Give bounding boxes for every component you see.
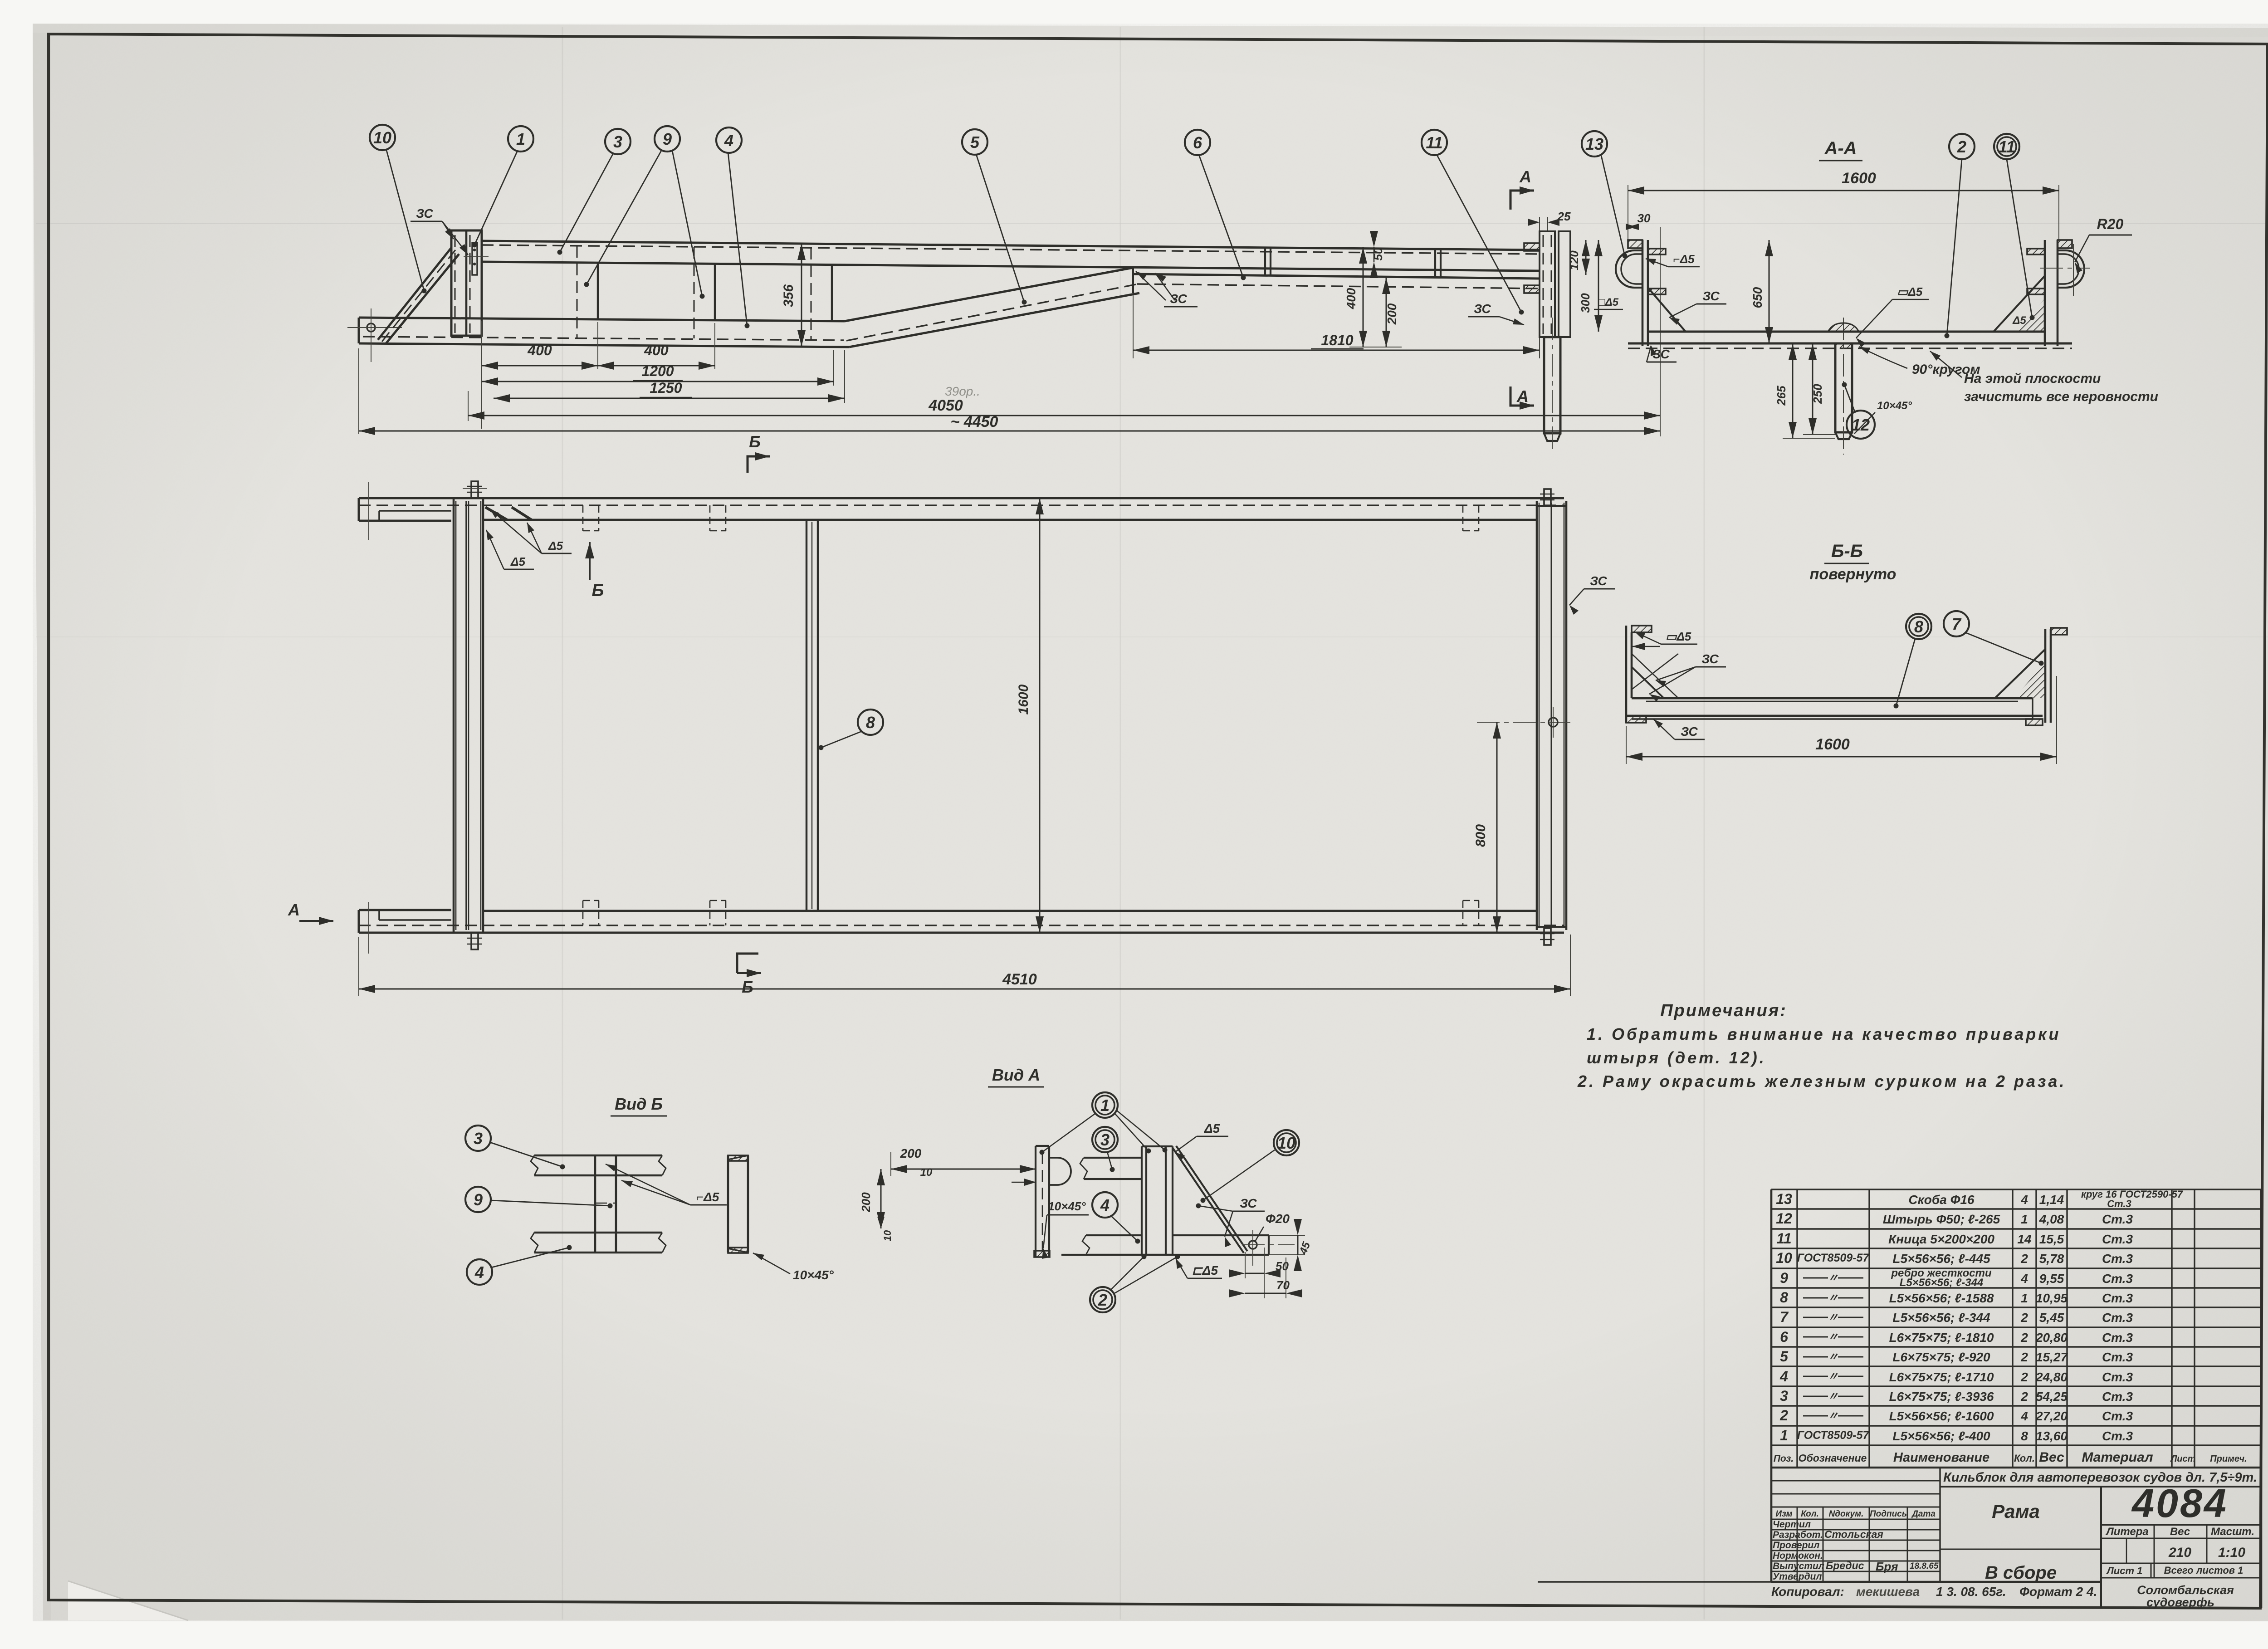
svg-text:Всего листов 1: Всего листов 1 <box>2164 1565 2244 1576</box>
svg-text:13,60: 13,60 <box>2036 1429 2068 1443</box>
svg-text:ГОСТ8509-57: ГОСТ8509-57 <box>1797 1252 1870 1264</box>
svg-text:На этой плоскости: На этой плоскости <box>1964 371 2101 386</box>
svg-text:3: 3 <box>1100 1130 1110 1149</box>
svg-text:4: 4 <box>1779 1368 1788 1385</box>
svg-text:Подпись: Подпись <box>1870 1509 1907 1519</box>
svg-text:4: 4 <box>2020 1193 2028 1207</box>
svg-text:300: 300 <box>1579 293 1592 313</box>
svg-text:70: 70 <box>1276 1278 1290 1292</box>
svg-text:6: 6 <box>1780 1329 1788 1345</box>
svg-text:2: 2 <box>1779 1407 1788 1424</box>
svg-text:Ст.3: Ст.3 <box>2102 1212 2133 1226</box>
svg-text:Лист 1: Лист 1 <box>2106 1565 2143 1576</box>
svg-text:L6×75×75; ℓ-3936: L6×75×75; ℓ-3936 <box>1889 1390 1994 1404</box>
svg-text:50: 50 <box>1276 1259 1289 1273</box>
svg-text:Ст.3: Ст.3 <box>2102 1350 2133 1364</box>
svg-text:200: 200 <box>1385 303 1399 325</box>
svg-text:4084: 4084 <box>2131 1481 2228 1526</box>
svg-text:27,20: 27,20 <box>2035 1409 2068 1423</box>
svg-text:400: 400 <box>644 342 669 358</box>
svg-text:Б-Б: Б-Б <box>1831 541 1863 561</box>
svg-text:Нормокон.: Нормокон. <box>1773 1551 1823 1561</box>
svg-text:Кол.: Кол. <box>2014 1453 2035 1464</box>
svg-text:Примечания:: Примечания: <box>1660 1001 1787 1020</box>
svg-text:1. Обратить внимание на кач: 1. Обратить внимание на качество приварк… <box>1587 1025 2061 1043</box>
svg-text:1: 1 <box>2021 1212 2028 1226</box>
svg-text:400: 400 <box>527 342 552 358</box>
svg-text:4: 4 <box>2020 1409 2028 1423</box>
svg-text:13: 13 <box>1776 1191 1792 1207</box>
svg-text:〃: 〃 <box>1828 1272 1838 1284</box>
svg-text:Ст.3: Ст.3 <box>2102 1272 2133 1286</box>
svg-text:10: 10 <box>882 1230 893 1241</box>
svg-text:10: 10 <box>1776 1250 1792 1266</box>
svg-text:Вид Б: Вид Б <box>615 1095 663 1113</box>
svg-text:10×45°: 10×45° <box>793 1268 834 1282</box>
svg-text:8: 8 <box>866 713 875 732</box>
svg-text:Лист: Лист <box>2170 1454 2196 1464</box>
svg-text:〃: 〃 <box>1828 1390 1838 1403</box>
svg-text:2: 2 <box>2020 1331 2028 1345</box>
svg-text:Б: Б <box>742 978 753 996</box>
svg-text:Утвердил: Утвердил <box>1773 1571 1822 1582</box>
svg-text:1810: 1810 <box>1321 332 1353 348</box>
svg-text:5,45: 5,45 <box>2039 1311 2064 1325</box>
svg-text:1: 1 <box>516 130 525 148</box>
svg-text:Разработ.: Разработ. <box>1773 1530 1823 1540</box>
svg-text:13: 13 <box>1585 135 1603 153</box>
svg-text:Δ5: Δ5 <box>510 555 525 568</box>
svg-text:4,08: 4,08 <box>2039 1212 2064 1226</box>
svg-text:ЗС: ЗС <box>1701 652 1719 666</box>
svg-text:2: 2 <box>2020 1390 2028 1404</box>
svg-text:2: 2 <box>2020 1252 2028 1266</box>
svg-text:200: 200 <box>900 1146 922 1160</box>
svg-text:1250: 1250 <box>650 380 682 396</box>
svg-text:11: 11 <box>1426 133 1442 152</box>
svg-text:Δ5: Δ5 <box>2012 314 2026 327</box>
svg-text:39ор..: 39ор.. <box>945 384 980 398</box>
svg-text:4: 4 <box>2020 1272 2028 1286</box>
svg-text:10×45°: 10×45° <box>1048 1199 1086 1213</box>
svg-text:Ст.3: Ст.3 <box>2102 1409 2133 1423</box>
svg-text:2: 2 <box>1957 137 1966 156</box>
svg-text:200: 200 <box>859 1192 873 1213</box>
svg-text:L6×75×75; ℓ-1710: L6×75×75; ℓ-1710 <box>1889 1370 1994 1384</box>
svg-text:4510: 4510 <box>1002 971 1037 988</box>
svg-text:15,5: 15,5 <box>2039 1232 2064 1246</box>
svg-text:4: 4 <box>724 131 733 150</box>
svg-text:круг 16 ГОСТ2590-57: круг 16 ГОСТ2590-57 <box>2081 1189 2184 1200</box>
svg-text:2. Раму окрасить железным с: 2. Раму окрасить железным суриком на 2 р… <box>1577 1072 2066 1091</box>
svg-text:1600: 1600 <box>1016 684 1031 714</box>
svg-text:Поз.: Поз. <box>1774 1453 1794 1464</box>
svg-text:1: 1 <box>1100 1096 1110 1115</box>
svg-text:L6×75×75; ℓ-1810: L6×75×75; ℓ-1810 <box>1889 1331 1994 1345</box>
svg-text:400: 400 <box>1344 288 1358 309</box>
svg-text:10×45°: 10×45° <box>1877 400 1912 412</box>
svg-text:Вес: Вес <box>2039 1450 2064 1465</box>
svg-text:〃: 〃 <box>1828 1410 1838 1422</box>
svg-text:Чертил: Чертил <box>1773 1519 1811 1530</box>
svg-text:судоверфь: судоверфь <box>2146 1595 2214 1609</box>
svg-text:356: 356 <box>781 284 796 307</box>
svg-text:9: 9 <box>1780 1270 1788 1286</box>
svg-text:1200: 1200 <box>641 363 674 379</box>
svg-text:1600: 1600 <box>1842 170 1876 187</box>
svg-text:Литера: Литера <box>2105 1526 2149 1538</box>
svg-text:Δ5: Δ5 <box>548 539 563 553</box>
svg-text:120: 120 <box>1567 250 1581 270</box>
svg-text:ЗС: ЗС <box>1240 1196 1257 1210</box>
svg-text:Скоба Ф16: Скоба Ф16 <box>1908 1193 1975 1207</box>
svg-text:ЗС: ЗС <box>1590 574 1607 588</box>
svg-text:⊏Δ5: ⊏Δ5 <box>1192 1263 1218 1277</box>
svg-text:4: 4 <box>474 1263 484 1282</box>
svg-text:Бря: Бря <box>1876 1560 1898 1573</box>
svg-text:А: А <box>1519 167 1531 186</box>
svg-text:265: 265 <box>1774 386 1788 406</box>
svg-text:12: 12 <box>1852 416 1870 434</box>
svg-text:210: 210 <box>2168 1545 2191 1560</box>
svg-text:5,78: 5,78 <box>2039 1252 2064 1266</box>
svg-text:8: 8 <box>1780 1289 1788 1306</box>
svg-text:3: 3 <box>1780 1388 1788 1404</box>
svg-text:Δ5: Δ5 <box>1204 1121 1220 1135</box>
svg-text:⌐Δ5: ⌐Δ5 <box>1673 252 1695 266</box>
svg-text:ЗС: ЗС <box>1702 289 1720 303</box>
svg-text:8: 8 <box>2021 1429 2028 1443</box>
svg-text:6: 6 <box>1193 133 1202 152</box>
svg-text:Б: Б <box>749 432 761 451</box>
svg-text:50: 50 <box>1371 247 1385 260</box>
svg-text:повернуто: повернуто <box>1810 566 1897 583</box>
svg-text:L5×56×56; ℓ-445: L5×56×56; ℓ-445 <box>1892 1252 1990 1266</box>
svg-text:10: 10 <box>920 1166 933 1179</box>
svg-text:L6×75×75; ℓ-920: L6×75×75; ℓ-920 <box>1892 1350 1990 1364</box>
svg-text:Ст.3: Ст.3 <box>2102 1370 2133 1384</box>
svg-text:4: 4 <box>1100 1196 1110 1214</box>
svg-text:9: 9 <box>663 130 672 148</box>
svg-text:3: 3 <box>474 1129 483 1148</box>
svg-text:ЗС: ЗС <box>416 206 433 220</box>
svg-text:15,27: 15,27 <box>2036 1350 2068 1364</box>
svg-text:Ст.3: Ст.3 <box>2102 1232 2133 1246</box>
svg-text:1,14: 1,14 <box>2039 1193 2064 1207</box>
svg-text:Стольская: Стольская <box>1824 1528 1883 1540</box>
svg-text:11: 11 <box>1998 137 2015 156</box>
svg-text:R20: R20 <box>2097 216 2124 232</box>
svg-text:L5×56×56; ℓ-344: L5×56×56; ℓ-344 <box>1892 1311 1990 1325</box>
svg-text:5: 5 <box>1780 1348 1789 1365</box>
svg-text:ГОСТ8509-57: ГОСТ8509-57 <box>1797 1429 1870 1442</box>
svg-text:⌐Δ5: ⌐Δ5 <box>696 1190 719 1204</box>
svg-text:Материал: Материал <box>2082 1450 2153 1465</box>
svg-text:2: 2 <box>1098 1291 1107 1309</box>
svg-text:Соломбальская: Соломбальская <box>2137 1583 2234 1597</box>
svg-text:Б: Б <box>592 581 604 600</box>
svg-text:Проверил: Проверил <box>1773 1540 1819 1551</box>
svg-text:1: 1 <box>1780 1427 1788 1443</box>
svg-text:24,80: 24,80 <box>2035 1370 2068 1384</box>
svg-text:9: 9 <box>474 1190 483 1209</box>
svg-text:5: 5 <box>970 133 980 152</box>
svg-text:Вес: Вес <box>2170 1526 2190 1538</box>
svg-text:Копировал:: Копировал: <box>1771 1585 1844 1599</box>
svg-text:Вид А: Вид А <box>992 1066 1040 1084</box>
svg-text:▭Δ5: ▭Δ5 <box>1897 285 1923 298</box>
svg-text:〃: 〃 <box>1828 1311 1838 1324</box>
svg-text:25: 25 <box>1557 210 1571 223</box>
svg-text:А-А: А-А <box>1824 138 1857 158</box>
svg-text:L5×56×56; ℓ-1600: L5×56×56; ℓ-1600 <box>1889 1409 1994 1423</box>
svg-text:Примеч.: Примеч. <box>2210 1454 2247 1464</box>
svg-text:В сборе: В сборе <box>1985 1563 2057 1583</box>
svg-text:11: 11 <box>1776 1230 1791 1247</box>
svg-text:А: А <box>1516 387 1529 406</box>
svg-text:〃: 〃 <box>1828 1292 1838 1304</box>
svg-text:3: 3 <box>613 132 622 151</box>
svg-text:9,55: 9,55 <box>2039 1272 2064 1286</box>
svg-text:Выпустил: Выпустил <box>1773 1561 1824 1571</box>
svg-text:10: 10 <box>373 128 391 147</box>
svg-text:2: 2 <box>2020 1311 2028 1325</box>
svg-text:зачистить все неровности: зачистить все неровности <box>1964 389 2158 404</box>
svg-text:Ст.3: Ст.3 <box>2102 1291 2133 1305</box>
svg-text:Ст.3: Ст.3 <box>2102 1429 2133 1443</box>
svg-text:мекишева: мекишева <box>1856 1585 1920 1599</box>
svg-text:14: 14 <box>2017 1232 2032 1246</box>
svg-text:Ф20: Ф20 <box>1266 1212 1290 1226</box>
svg-text:штыря (дет. 12).: штыря (дет. 12). <box>1587 1048 1766 1067</box>
svg-text:ЗС: ЗС <box>1681 724 1698 739</box>
svg-text:18.8.65: 18.8.65 <box>1910 1561 1939 1571</box>
svg-text:7: 7 <box>1780 1309 1789 1325</box>
svg-text:Бредис: Бредис <box>1826 1560 1864 1571</box>
svg-text:▭Δ5: ▭Δ5 <box>1666 630 1691 643</box>
svg-text:250: 250 <box>1811 384 1824 404</box>
svg-text:8: 8 <box>1914 617 1923 636</box>
svg-text:〃: 〃 <box>1828 1351 1838 1363</box>
svg-text:Масшт.: Масшт. <box>2211 1526 2254 1538</box>
svg-text:Наименование: Наименование <box>1893 1450 1989 1465</box>
svg-text:ЗС: ЗС <box>1474 302 1491 316</box>
svg-text:1: 1 <box>2021 1291 2028 1305</box>
svg-text:2: 2 <box>2020 1370 2028 1384</box>
svg-text:Штырь Ф50; ℓ-265: Штырь Ф50; ℓ-265 <box>1883 1212 2000 1226</box>
svg-text:~ 4450: ~ 4450 <box>951 413 998 431</box>
svg-text:L5×56×56; ℓ-1588: L5×56×56; ℓ-1588 <box>1889 1291 1994 1305</box>
svg-text:ЗС: ЗС <box>1170 292 1187 306</box>
svg-text:1 3. 08. 65г.: 1 3. 08. 65г. <box>1936 1585 2006 1599</box>
svg-text:Ст.3: Ст.3 <box>2102 1311 2133 1325</box>
svg-text:10,95: 10,95 <box>2036 1291 2068 1305</box>
svg-text:650: 650 <box>1750 287 1765 308</box>
svg-text:7: 7 <box>1952 615 1962 633</box>
svg-text:800: 800 <box>1473 824 1488 847</box>
svg-text:20,80: 20,80 <box>2035 1331 2068 1345</box>
svg-text:А: А <box>288 900 300 919</box>
svg-text:□Δ5: □Δ5 <box>1598 296 1619 308</box>
svg-text:L5×56×56; ℓ-344: L5×56×56; ℓ-344 <box>1900 1277 1984 1289</box>
svg-text:Nдокум.: Nдокум. <box>1829 1509 1864 1519</box>
svg-text:1:10: 1:10 <box>2218 1545 2245 1560</box>
svg-text:1600: 1600 <box>1815 736 1850 753</box>
svg-text:Ст.3: Ст.3 <box>2107 1198 2131 1209</box>
svg-text:10: 10 <box>1277 1134 1295 1152</box>
svg-text:Ст.3: Ст.3 <box>2102 1331 2133 1345</box>
svg-text:54,25: 54,25 <box>2036 1390 2068 1404</box>
svg-text:Ст.3: Ст.3 <box>2102 1252 2133 1266</box>
svg-text:Изм: Изм <box>1775 1509 1792 1519</box>
svg-text:Рама: Рама <box>1992 1501 2040 1522</box>
svg-text:Дата: Дата <box>1911 1509 1936 1519</box>
svg-text:2: 2 <box>2020 1350 2028 1364</box>
svg-text:Ст.3: Ст.3 <box>2102 1390 2133 1404</box>
svg-text:Кол.: Кол. <box>1801 1509 1819 1519</box>
svg-text:〃: 〃 <box>1828 1370 1838 1383</box>
svg-text:〃: 〃 <box>1828 1331 1838 1343</box>
svg-text:30: 30 <box>1637 211 1651 225</box>
svg-text:Кница 5×200×200: Кница 5×200×200 <box>1888 1232 1994 1246</box>
svg-text:4050: 4050 <box>928 397 963 414</box>
svg-text:Обозначение: Обозначение <box>1799 1452 1867 1464</box>
svg-text:Формат 2 4.: Формат 2 4. <box>2019 1585 2097 1599</box>
svg-text:12: 12 <box>1776 1210 1792 1227</box>
svg-text:L5×56×56; ℓ-400: L5×56×56; ℓ-400 <box>1892 1429 1990 1443</box>
